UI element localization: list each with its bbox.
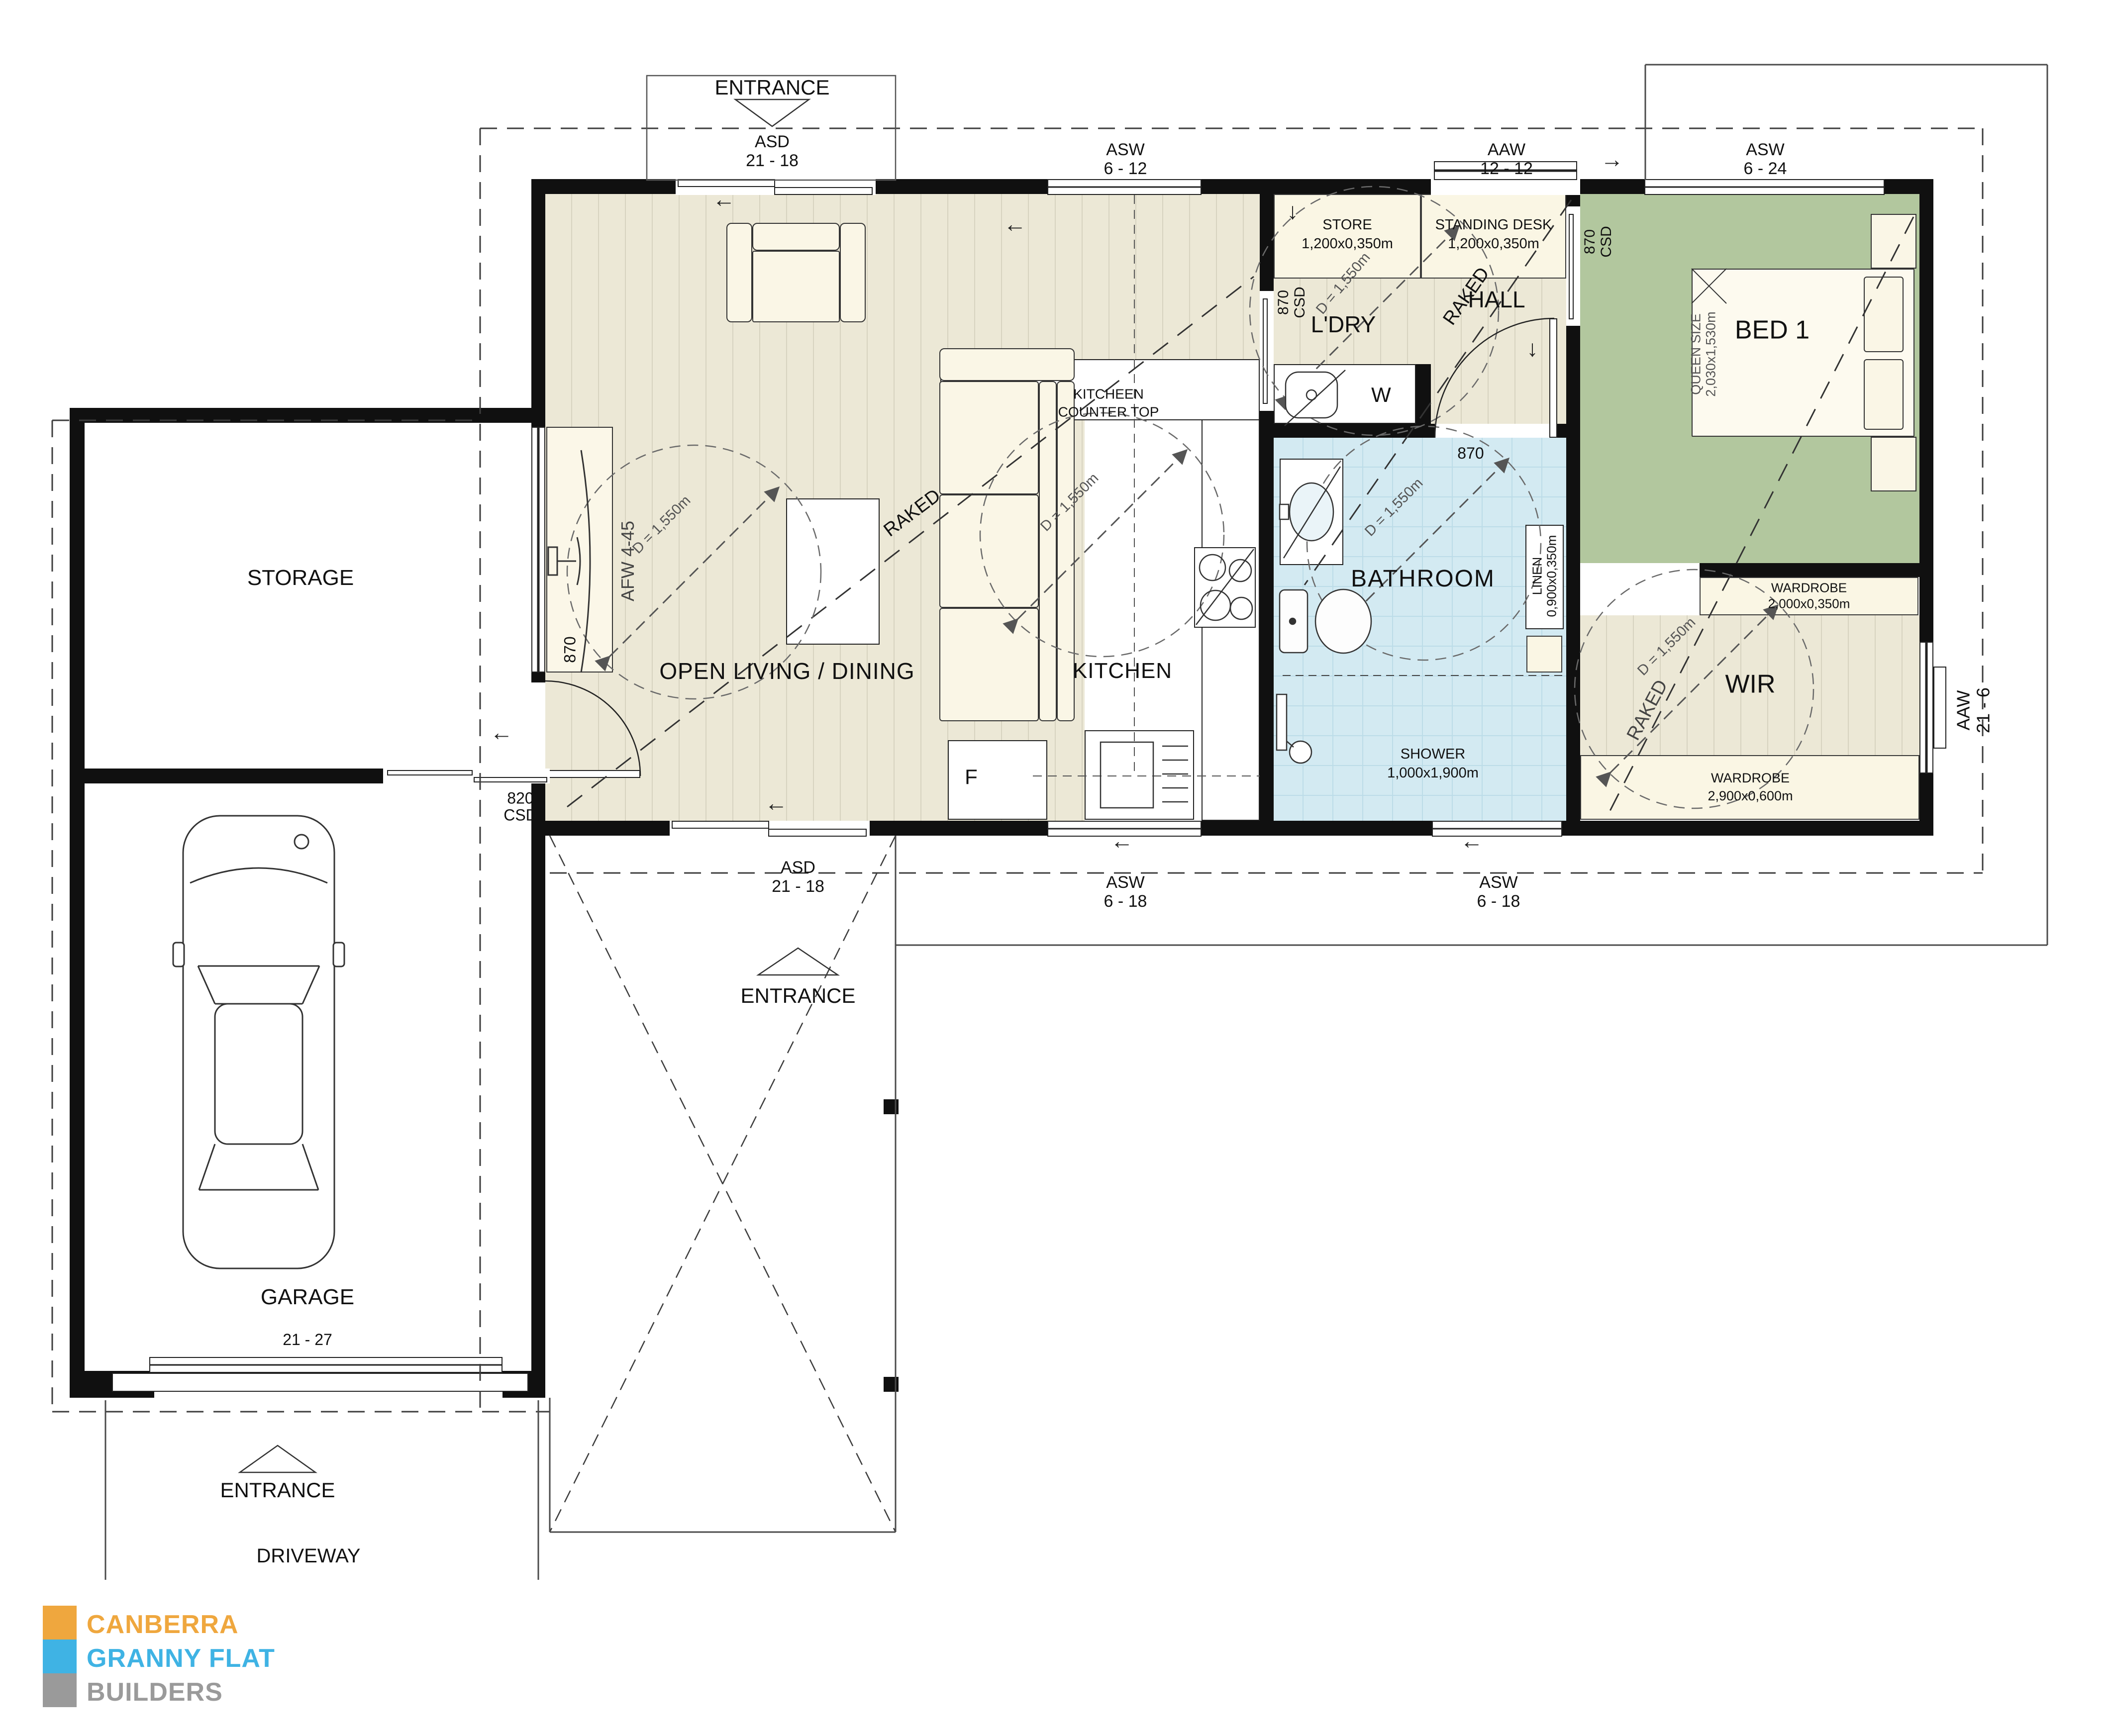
bed-fold — [1692, 269, 1726, 303]
porch-entrance-label: ENTRANCE — [740, 985, 855, 1007]
asw-6-12-code: ASW — [1106, 141, 1144, 159]
living-870-label: 870 — [561, 636, 579, 663]
logo-square-orange — [43, 1606, 77, 1640]
asw-6-18-2-code: ASW — [1479, 874, 1517, 892]
asd-bottom-code: ASD — [781, 859, 815, 877]
living-label: OPEN LIVING / DINING — [659, 659, 914, 683]
toilet-icon — [1280, 589, 1371, 653]
down-arrow-icon: ↓ — [1287, 197, 1299, 224]
logo-text-canberra: CANBERRA — [87, 1610, 239, 1640]
asd-top-code: ASD — [755, 133, 790, 151]
right-arrow-icon: → — [1601, 146, 1623, 173]
asw-6-24-size: 6 - 24 — [1744, 160, 1787, 178]
queen-size-label: QUEEN SIZE 2,030x1,530m — [1689, 311, 1718, 396]
aaw-12-12-size: 12 - 12 — [1480, 160, 1533, 178]
entrance-top-label: ENTRANCE — [714, 77, 829, 98]
asd-bottom-size: 21 - 18 — [772, 878, 824, 896]
washer-label: W — [1371, 384, 1391, 406]
driveway-entrance-label: ENTRANCE — [220, 1479, 335, 1501]
entrance-triangles — [240, 99, 838, 1472]
bath-870-label: 870 — [1457, 445, 1484, 462]
cooktop-burners-icon — [1196, 549, 1254, 625]
counter-label-2: COUNTER TOP — [1058, 404, 1159, 419]
afw-label: AFW 4-45 — [618, 521, 638, 601]
left-arrow-icon: ← — [1110, 827, 1133, 854]
wir-label: WIR — [1725, 671, 1775, 698]
laundry-label: L'DRY — [1311, 312, 1376, 336]
diameter-arrows — [609, 226, 1778, 772]
aaw-12-12-code: AAW — [1488, 141, 1525, 159]
shower-size: 1,000x1,900m — [1387, 766, 1479, 780]
garage-label: GARAGE — [261, 1286, 354, 1309]
logo-square-gray — [43, 1673, 77, 1707]
wardrobe-top-name: WARDROBE — [1771, 581, 1847, 594]
left-arrow-icon: ← — [490, 719, 513, 746]
bed-csd-label: 870 CSD — [1582, 226, 1614, 257]
kitchen-label: KITCHEN — [1073, 660, 1172, 682]
wardrobe-bottom-name: WARDROBE — [1711, 771, 1790, 785]
floor-plan: ← ← → ↓ ↓ ← ← ← ← ENTRANCE ASD 21 - 18 A… — [0, 0, 2111, 1736]
garage-door-size: 21 - 27 — [283, 1332, 332, 1349]
store-name: STORE — [1322, 217, 1372, 232]
vanity-basin-icon — [1280, 467, 1340, 558]
bathroom-label: BATHROOM — [1351, 567, 1495, 591]
porch-cross-dashed — [550, 836, 896, 1532]
linen-label: LINEN 0,900x0,350m — [1530, 535, 1558, 617]
left-arrow-icon: ← — [1004, 210, 1026, 237]
roof-reference-lines — [105, 65, 2047, 1580]
kitchen-dashed — [1033, 195, 1260, 776]
turning-circles — [567, 187, 1813, 808]
standing-desk-size: 1,200x0,350m — [1448, 236, 1539, 251]
laundry-sink-icon — [1285, 370, 1345, 426]
fridge-label: F — [965, 766, 978, 788]
car-icon — [173, 816, 344, 1268]
logo-square-blue — [43, 1640, 77, 1673]
storage-label: STORAGE — [247, 567, 354, 589]
driveway-label: DRIVEWAY — [257, 1545, 361, 1566]
shower-name: SHOWER — [1401, 747, 1466, 762]
asw-6-12-size: 6 - 12 — [1104, 160, 1147, 178]
counter-label-1: KITCHEEN — [1073, 386, 1144, 401]
standing-desk-name: STANDING DESK — [1435, 217, 1552, 232]
left-arrow-icon: ← — [765, 789, 788, 816]
bed1-label: BED 1 — [1735, 317, 1809, 344]
down-arrow-icon: ↓ — [1527, 335, 1538, 362]
left-arrow-icon: ← — [1460, 827, 1483, 854]
asw-6-18-1-size: 6 - 18 — [1104, 893, 1147, 911]
oven-detail — [1101, 742, 1188, 808]
asw-6-18-2-size: 6 - 18 — [1477, 893, 1520, 911]
logo-text-builders: BUILDERS — [87, 1677, 223, 1707]
laundry-csd-label: 870 CSD — [1275, 287, 1308, 318]
aaw-21-6-label: AAW 21 - 6 — [1953, 687, 1993, 733]
logo-text-grannyflat: GRANNY FLAT — [87, 1643, 275, 1673]
annotation-overlay — [0, 0, 2111, 1736]
asw-6-24-code: ASW — [1746, 141, 1784, 159]
storage-820-label: 820 CSD — [503, 790, 537, 823]
wardrobe-bottom-size: 2,900x0,600m — [1708, 789, 1793, 803]
left-arrow-icon: ← — [712, 186, 735, 212]
asw-6-18-1-code: ASW — [1106, 874, 1144, 892]
store-size: 1,200x0,350m — [1302, 236, 1393, 251]
raked-lines-dashed — [567, 200, 1913, 811]
asd-top-size: 21 - 18 — [746, 152, 799, 170]
shower-head-icon — [1277, 694, 1311, 763]
wardrobe-top-size: 2,000x0,350m — [1768, 597, 1850, 610]
